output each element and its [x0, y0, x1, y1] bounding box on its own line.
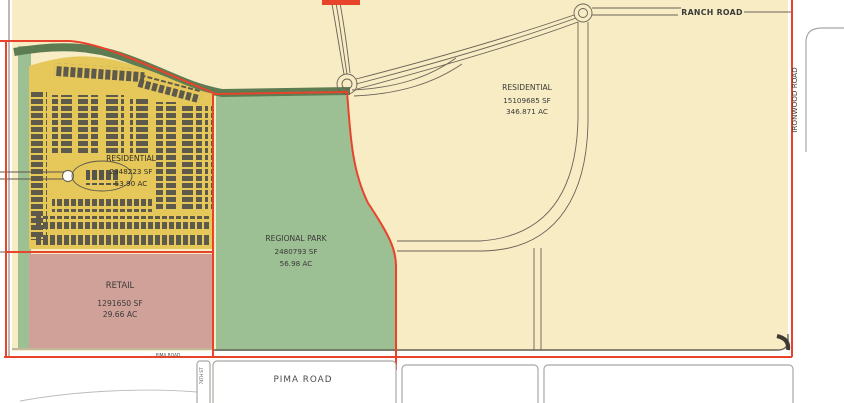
regional-park-label: REGIONAL PARK	[265, 234, 327, 243]
subdivision-lot-block	[130, 98, 150, 155]
subdivision-lot-block	[34, 216, 210, 229]
retail-sf: 1291650 SF	[97, 299, 142, 308]
subdivision-lot-block	[205, 104, 213, 210]
residential-subdivision-sf: 2348223 SF	[110, 167, 153, 176]
boundary-stub	[322, 0, 360, 5]
ironwood-road-label: IRONWOOD ROAD	[790, 67, 799, 133]
row-box	[402, 365, 538, 403]
ranch-road-label: RANCH ROAD	[681, 8, 743, 17]
subdivision-lot-block	[156, 102, 176, 210]
row-box	[544, 365, 793, 403]
residential-subdivision-label: RESIDENTIAL	[106, 154, 157, 163]
subdivision-lot-block	[52, 95, 72, 155]
subdivision-lot-block	[104, 95, 124, 155]
regional-park-ac: 56.98 AC	[280, 259, 313, 268]
row-box-ironwood	[806, 28, 844, 152]
pima-road-label: PIMA ROAD	[274, 375, 333, 385]
regional-park-sf: 2480793 SF	[275, 247, 318, 256]
subdivision-lot-block	[52, 199, 152, 212]
site-plan-canvas: RESIDENTIAL 15109685 SF 346.871 AC RESID…	[0, 0, 844, 403]
bottom-left-curve	[20, 390, 197, 401]
side-street-label: 74TH ST	[199, 367, 204, 384]
retail-ac: 29.66 AC	[103, 310, 138, 319]
subdivision-lot-block	[182, 104, 202, 210]
pima-road-small-label: PIMA ROAD	[156, 353, 181, 359]
site-plan-map: RESIDENTIAL 15109685 SF 346.871 AC RESID…	[0, 0, 844, 403]
residential-large-ac: 346.871 AC	[506, 107, 548, 116]
subdivision-lot-block	[78, 95, 98, 155]
subdivision-lot-block	[34, 232, 210, 246]
residential-large-label: RESIDENTIAL	[502, 83, 553, 92]
residential-large-sf: 15109685 SF	[503, 96, 551, 105]
residential-subdivision-ac: 53.90 AC	[115, 179, 148, 188]
retail-label: RETAIL	[106, 280, 135, 290]
